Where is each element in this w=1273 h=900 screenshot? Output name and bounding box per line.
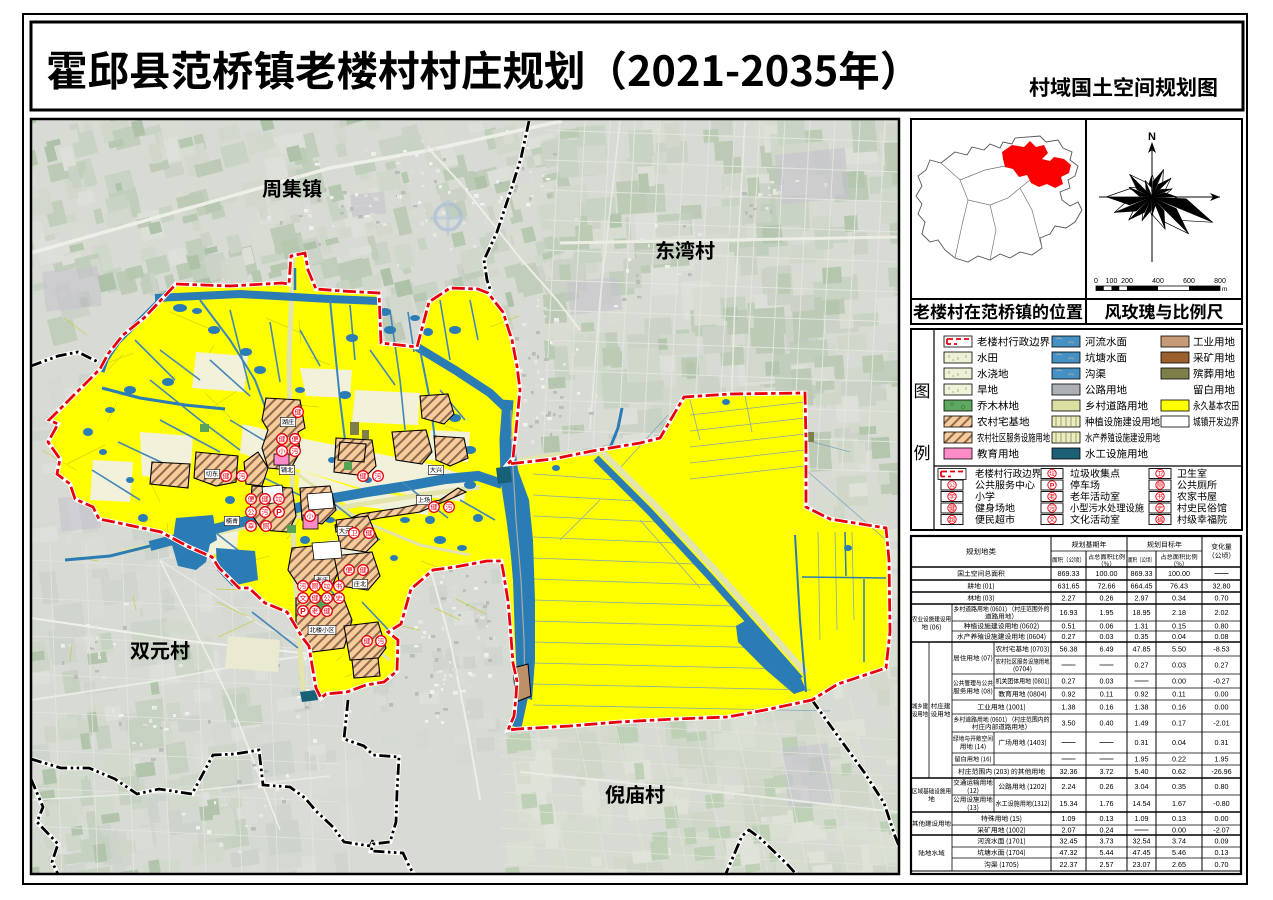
svg-text:2.02: 2.02	[1215, 608, 1229, 617]
svg-text:5.44: 5.44	[1100, 848, 1114, 857]
svg-text:0.70: 0.70	[1215, 860, 1229, 869]
svg-text:76.43: 76.43	[1170, 582, 1188, 591]
svg-text:-8.53: -8.53	[1213, 645, 1229, 654]
svg-text:869.33: 869.33	[1058, 569, 1080, 578]
svg-text:15.34: 15.34	[1060, 799, 1078, 808]
svg-text:0.27: 0.27	[1062, 632, 1076, 641]
svg-text:0.04: 0.04	[1172, 738, 1186, 747]
svg-text:400: 400	[1152, 278, 1164, 285]
svg-text:32.36: 32.36	[1060, 767, 1078, 776]
svg-text:2.65: 2.65	[1172, 860, 1186, 869]
svg-text:0.00: 0.00	[1215, 690, 1229, 699]
svg-text:16.93: 16.93	[1060, 608, 1078, 617]
svg-text:47.32: 47.32	[1060, 848, 1078, 857]
svg-text:1.95: 1.95	[1215, 755, 1229, 764]
svg-text:3.04: 3.04	[1135, 782, 1149, 791]
svg-text:6.49: 6.49	[1100, 645, 1114, 654]
svg-text:1.38: 1.38	[1135, 703, 1149, 712]
svg-text:100.00: 100.00	[1096, 569, 1118, 578]
svg-text:0.03: 0.03	[1100, 677, 1114, 686]
svg-text:0: 0	[1094, 278, 1098, 285]
svg-text:0.15: 0.15	[1172, 622, 1186, 631]
svg-text:32.80: 32.80	[1213, 582, 1231, 591]
svg-text:0.00: 0.00	[1215, 703, 1229, 712]
svg-text:56.38: 56.38	[1060, 645, 1078, 654]
svg-text:800: 800	[1214, 278, 1226, 285]
svg-text:2.18: 2.18	[1172, 608, 1186, 617]
svg-text:0.17: 0.17	[1172, 719, 1186, 728]
svg-text:1.38: 1.38	[1062, 703, 1076, 712]
svg-text:0.04: 0.04	[1172, 632, 1186, 641]
svg-text:0.27: 0.27	[1062, 677, 1076, 686]
svg-text:3.50: 3.50	[1062, 719, 1076, 728]
svg-text:P: P	[300, 606, 306, 616]
svg-text:664.45: 664.45	[1131, 582, 1153, 591]
svg-text:100: 100	[1106, 278, 1118, 285]
svg-text:1.67: 1.67	[1172, 799, 1186, 808]
svg-text:0.26: 0.26	[1100, 594, 1114, 603]
svg-text:0.80: 0.80	[1215, 782, 1229, 791]
svg-text:869.33: 869.33	[1131, 569, 1153, 578]
svg-text:47.85: 47.85	[1133, 645, 1151, 654]
svg-text:0.70: 0.70	[1215, 594, 1229, 603]
svg-text:32.45: 32.45	[1060, 837, 1078, 846]
svg-text:0.26: 0.26	[1100, 782, 1114, 791]
svg-text:1.95: 1.95	[1135, 755, 1149, 764]
svg-text:0.31: 0.31	[1135, 738, 1149, 747]
svg-text:1.76: 1.76	[1100, 799, 1114, 808]
svg-text:0.00: 0.00	[1172, 677, 1186, 686]
svg-text:5.40: 5.40	[1135, 767, 1149, 776]
svg-text:0.24: 0.24	[1100, 826, 1114, 835]
svg-text:0.09: 0.09	[1215, 837, 1229, 846]
svg-text:0.03: 0.03	[1172, 661, 1186, 670]
svg-text:0.51: 0.51	[1062, 622, 1076, 631]
svg-text:600: 600	[1183, 278, 1195, 285]
svg-text:2.07: 2.07	[1062, 826, 1076, 835]
svg-text:0.62: 0.62	[1172, 767, 1186, 776]
svg-text:0.31: 0.31	[1215, 738, 1229, 747]
svg-text:200: 200	[1121, 278, 1133, 285]
svg-text:0.00: 0.00	[1215, 814, 1229, 823]
svg-text:0.35: 0.35	[1135, 632, 1149, 641]
svg-text:-0.80: -0.80	[1213, 799, 1229, 808]
svg-text:0.13: 0.13	[1100, 814, 1114, 823]
svg-text:0.08: 0.08	[1215, 632, 1229, 641]
svg-text:0.06: 0.06	[1100, 622, 1114, 631]
svg-text:23.07: 23.07	[1133, 860, 1151, 869]
svg-text:1.31: 1.31	[1135, 622, 1149, 631]
svg-text:1.09: 1.09	[1062, 814, 1076, 823]
svg-text:N: N	[1148, 131, 1156, 143]
svg-text:0.16: 0.16	[1172, 703, 1186, 712]
svg-text:18.95: 18.95	[1133, 608, 1151, 617]
svg-text:0.35: 0.35	[1172, 782, 1186, 791]
svg-text:1.09: 1.09	[1135, 814, 1149, 823]
svg-text:0.34: 0.34	[1172, 594, 1186, 603]
svg-text:0.22: 0.22	[1172, 755, 1186, 764]
svg-text:0.00: 0.00	[1172, 826, 1186, 835]
svg-text:100.00: 100.00	[1168, 569, 1190, 578]
svg-text:5.46: 5.46	[1172, 848, 1186, 857]
svg-text:0.11: 0.11	[1100, 690, 1113, 699]
svg-text:-0.27: -0.27	[1213, 677, 1229, 686]
svg-text:3.73: 3.73	[1100, 837, 1114, 846]
svg-text:3.72: 3.72	[1100, 767, 1114, 776]
svg-text:5.50: 5.50	[1172, 645, 1186, 654]
svg-text:1.49: 1.49	[1135, 719, 1149, 728]
svg-text:0.13: 0.13	[1215, 848, 1229, 857]
svg-text:2.97: 2.97	[1135, 594, 1149, 603]
svg-text:P: P	[1050, 482, 1055, 489]
svg-text:-2.01: -2.01	[1213, 719, 1229, 728]
svg-text:m: m	[1222, 286, 1227, 293]
svg-text:0.13: 0.13	[1172, 814, 1186, 823]
svg-text:631.65: 631.65	[1058, 582, 1080, 591]
svg-text:0.11: 0.11	[1172, 690, 1185, 699]
svg-text:0.27: 0.27	[1135, 661, 1149, 670]
svg-text:0.92: 0.92	[1062, 690, 1076, 699]
svg-text:14.54: 14.54	[1133, 799, 1151, 808]
svg-text:0.03: 0.03	[1100, 632, 1114, 641]
svg-text:0.92: 0.92	[1135, 690, 1149, 699]
svg-text:2.27: 2.27	[1062, 594, 1076, 603]
svg-text:-2.07: -2.07	[1213, 826, 1229, 835]
svg-text:2.24: 2.24	[1062, 782, 1076, 791]
svg-text:0.16: 0.16	[1100, 703, 1114, 712]
svg-text:3.74: 3.74	[1172, 837, 1186, 846]
svg-text:32.54: 32.54	[1133, 837, 1151, 846]
svg-text:2.57: 2.57	[1100, 860, 1114, 869]
svg-text:0.40: 0.40	[1100, 719, 1114, 728]
svg-text:47.45: 47.45	[1133, 848, 1151, 857]
svg-text:P: P	[276, 507, 282, 517]
svg-text:-26.96: -26.96	[1211, 767, 1231, 776]
svg-text:0.27: 0.27	[1215, 661, 1229, 670]
svg-text:72.66: 72.66	[1098, 582, 1116, 591]
svg-text:1.95: 1.95	[1100, 608, 1114, 617]
svg-text:22.37: 22.37	[1060, 860, 1078, 869]
svg-text:0.80: 0.80	[1215, 622, 1229, 631]
